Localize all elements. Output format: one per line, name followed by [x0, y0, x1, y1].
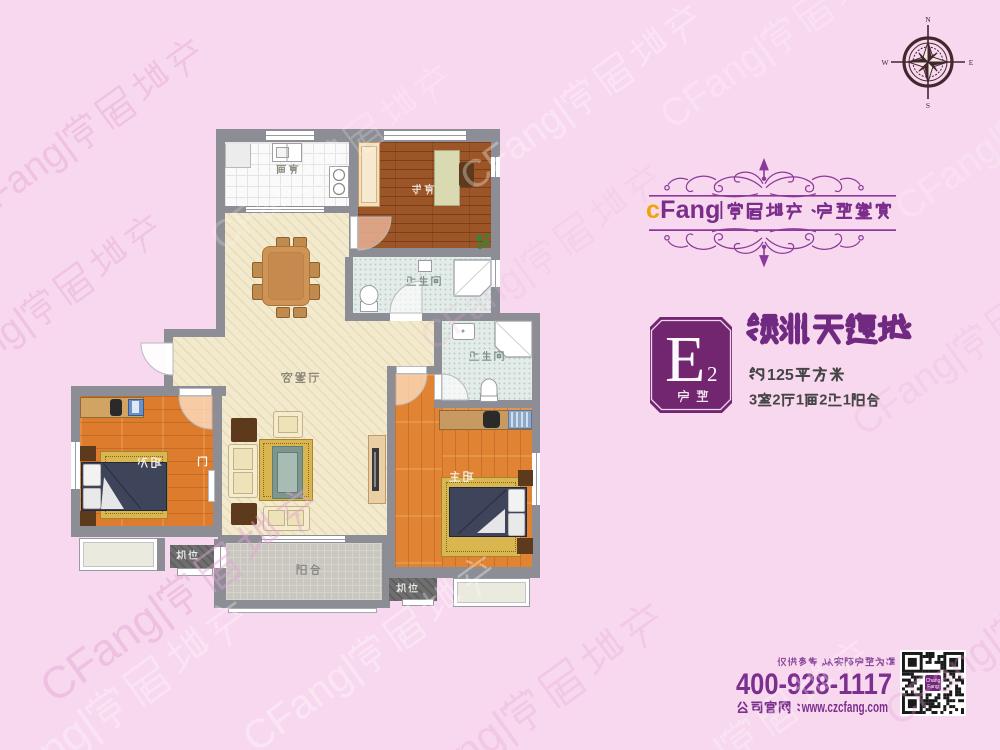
- svg-text:CFang|: CFang|: [234, 646, 369, 750]
- svg-text:CFang|: CFang|: [452, 90, 580, 199]
- svg-text:CFang|: CFang|: [0, 124, 82, 233]
- svg-text:CFang|: CFang|: [652, 28, 780, 137]
- svg-text:CFang|: CFang|: [876, 620, 1000, 735]
- svg-text:CFang|: CFang|: [412, 250, 540, 359]
- svg-text:CFang|: CFang|: [202, 150, 330, 259]
- svg-text:CFang|: CFang|: [844, 335, 972, 444]
- svg-text:CFang|: CFang|: [887, 120, 1000, 229]
- svg-text:CFang|: CFang|: [606, 730, 741, 750]
- svg-text:CFang|: CFang|: [0, 300, 40, 409]
- svg-text:CFang|: CFang|: [374, 701, 522, 750]
